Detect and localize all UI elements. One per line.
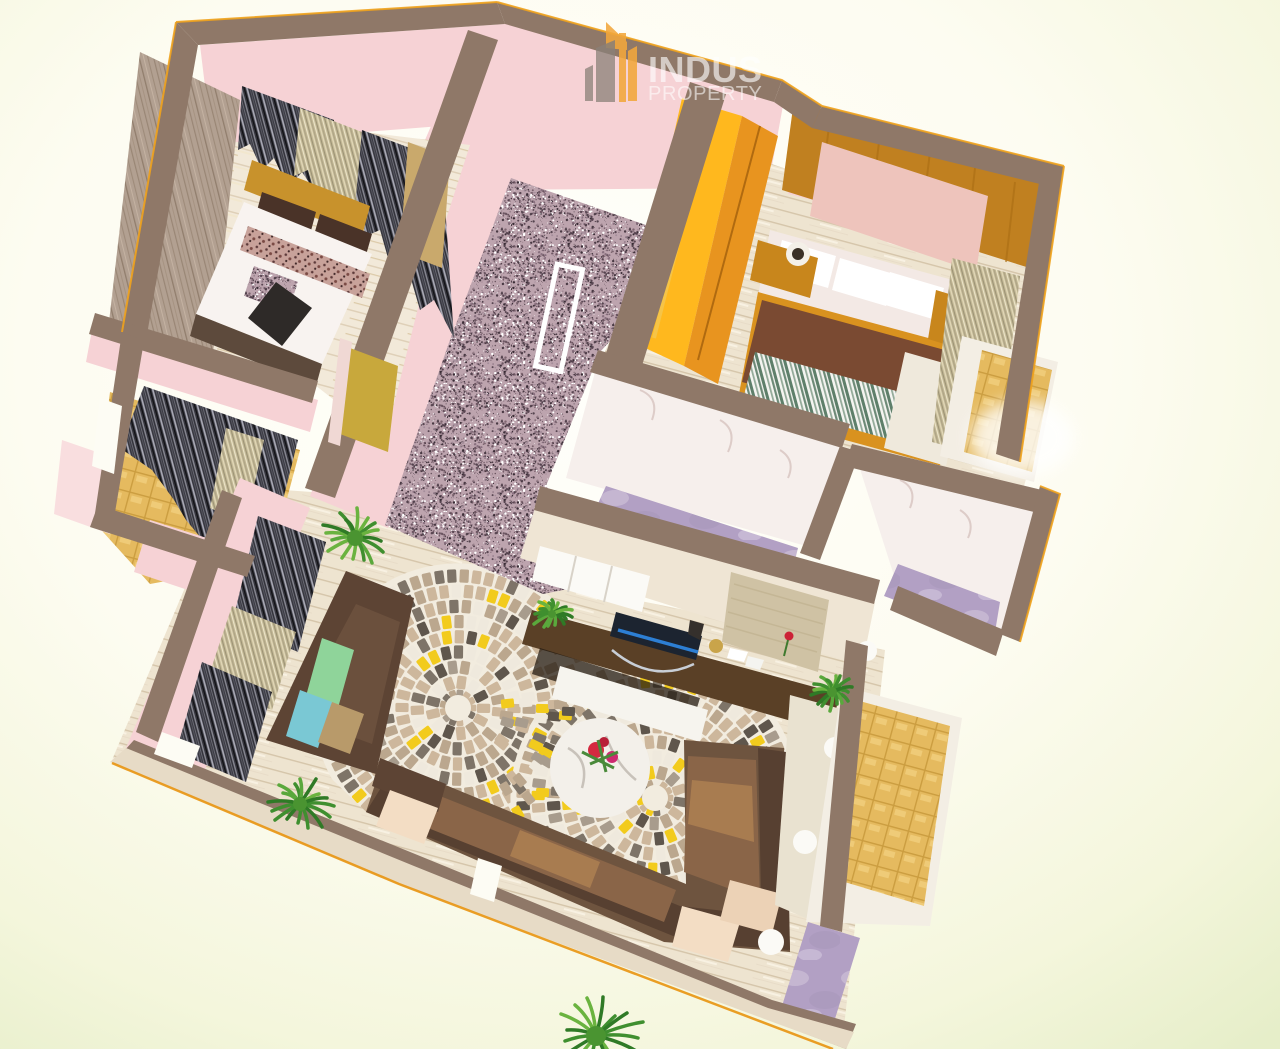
svg-text:PROPERTY: PROPERTY — [648, 83, 762, 105]
